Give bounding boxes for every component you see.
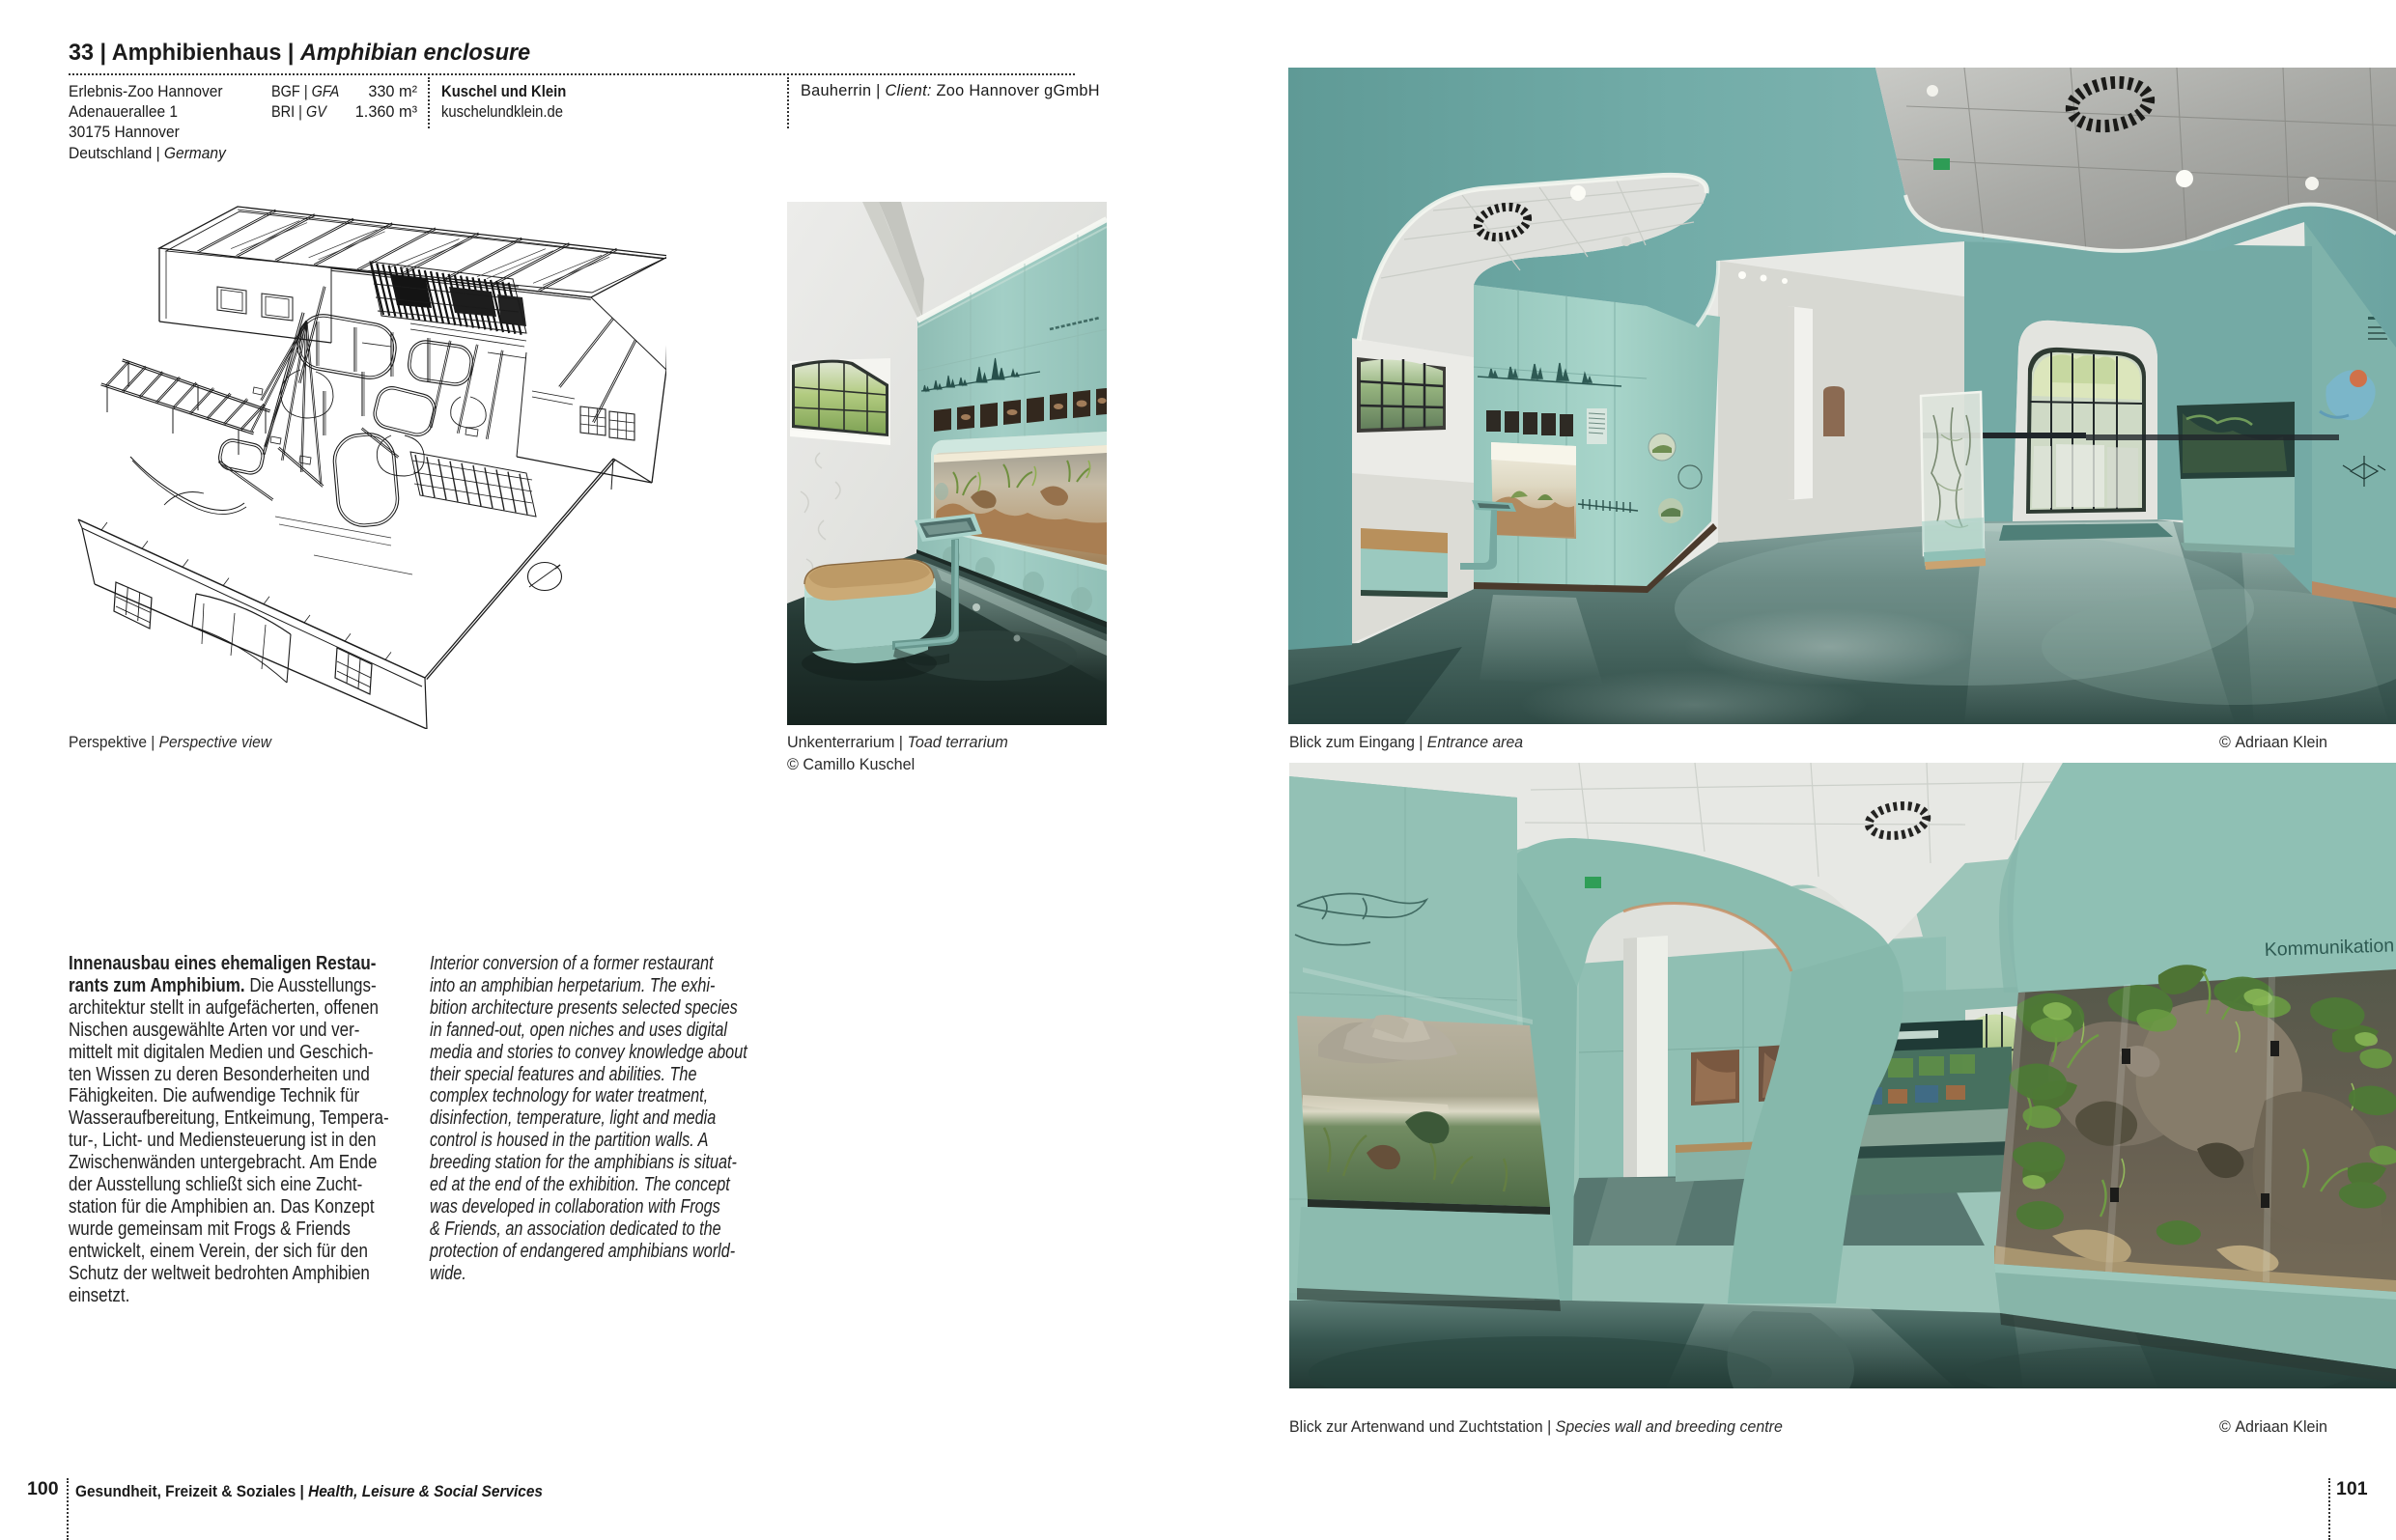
svg-text:Kommunikation: Kommunikation: [2264, 935, 2394, 961]
